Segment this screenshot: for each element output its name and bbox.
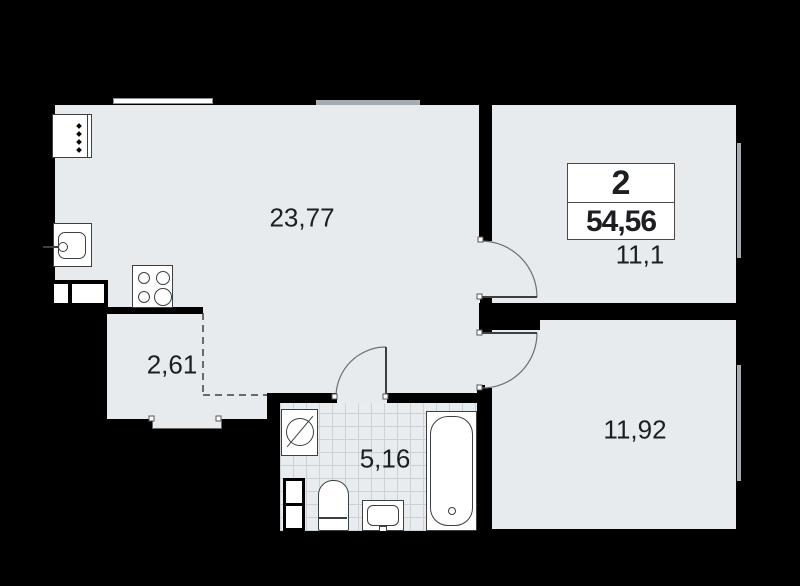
floor-plan-canvas: 23,77 11,1 11,92 2,61 5,16 2 54,56 <box>0 0 800 586</box>
door-opening-bathroom <box>337 393 387 403</box>
bathroom-sink-tap <box>379 526 387 531</box>
wall-entry-left <box>95 307 107 419</box>
fridge-dot <box>76 147 82 153</box>
burner-icon <box>138 291 150 303</box>
bathtub-icon <box>426 411 477 531</box>
fridge-dot <box>76 131 82 137</box>
fridge-icon <box>52 114 92 158</box>
wall-bathroom-top-left <box>267 393 337 403</box>
door-opening-bedroom-2 <box>479 333 492 388</box>
stove-icon <box>132 265 173 308</box>
sink-faucet <box>58 242 68 252</box>
hallway-zone <box>203 307 479 393</box>
wall-separator-top <box>479 96 492 152</box>
area-label-bedroom: 11,1 <box>616 240 665 271</box>
rooms-count: 2 <box>568 164 674 203</box>
wall-bottom <box>267 531 755 540</box>
wall-divider-chunk <box>479 303 540 330</box>
duct-box-divider <box>286 503 302 506</box>
vent-shaft-icon <box>50 280 108 307</box>
fridge-dot <box>76 123 82 129</box>
toilet-tank-line <box>319 517 347 519</box>
summary-badge: 2 54,56 <box>567 163 675 240</box>
sink-tap-line <box>43 246 59 248</box>
fridge-door-line <box>87 115 88 157</box>
wall-stub-upper <box>479 325 484 333</box>
entry-vestibule <box>203 393 267 419</box>
washing-machine-icon <box>281 409 318 456</box>
wall-bathroom-top-right <box>387 393 477 403</box>
wall-bathroom-left <box>267 393 280 531</box>
fridge-dot <box>76 139 82 145</box>
burner-icon <box>138 272 150 284</box>
area-label-bedroom-2: 11,92 <box>603 415 666 446</box>
window-living-top <box>316 100 420 105</box>
wall-kitchen-bottom <box>95 307 203 314</box>
kitchen-sink-icon <box>53 223 92 267</box>
room-kitchen-living <box>55 105 480 307</box>
bathroom-sink-basin <box>367 505 399 526</box>
toilet-icon <box>318 480 349 531</box>
wall-bathroom-right <box>477 388 492 531</box>
area-label-bathroom: 5,16 <box>360 444 411 475</box>
bathtub-drain <box>448 507 456 515</box>
area-label-entry-hall: 2,61 <box>147 350 198 381</box>
door-opening-bedroom <box>480 241 492 297</box>
bathroom-sink-icon <box>362 500 404 531</box>
total-area: 54,56 <box>568 203 674 241</box>
vent-shaft-divider <box>68 284 72 303</box>
window-bedroom2-right <box>737 365 741 481</box>
area-label-kitchen-living: 23,77 <box>269 203 334 234</box>
burner-icon <box>156 271 170 285</box>
duct-box-icon <box>283 478 305 531</box>
entrance-door-niche <box>152 419 222 429</box>
window-bedroom-right <box>737 143 741 258</box>
wall-separator-thin <box>479 152 484 241</box>
burner-icon <box>154 288 172 306</box>
window-kitchen-top <box>113 98 213 104</box>
